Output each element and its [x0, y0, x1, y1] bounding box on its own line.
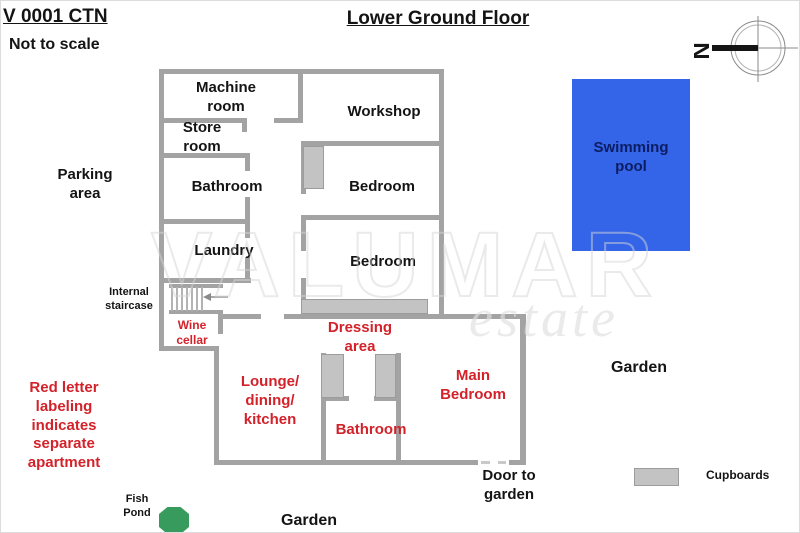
room-label-bedroom-lower: Bedroom	[350, 253, 416, 272]
room-label-workshop: Workshop	[347, 103, 420, 122]
room-label-bathroom-main: Bathroom	[192, 178, 263, 197]
label-door-to-garden: Door to garden	[482, 467, 535, 505]
label-garden-right: Garden	[611, 358, 667, 378]
legend-cupboards-label: Cupboards	[706, 468, 769, 483]
room-label-wine-cellar: Wine cellar	[176, 318, 207, 348]
label-garden-bottom: Garden	[281, 511, 337, 531]
apartment-note: Red letter labeling indicates separate a…	[28, 379, 101, 473]
room-label-store-room: Store room	[183, 119, 221, 157]
label-fish-pond: Fish Pond	[123, 493, 151, 521]
room-label-main-bedroom: Main Bedroom	[440, 367, 506, 405]
room-label-bedroom-upper: Bedroom	[349, 178, 415, 197]
label-internal-staircase: Internal staircase	[105, 286, 153, 314]
room-label-laundry: Laundry	[194, 242, 253, 261]
room-label-bathroom-apartment: Bathroom	[336, 421, 407, 440]
label-parking-area: Parking area	[57, 166, 112, 204]
room-label-machine-room: Machine room	[196, 79, 256, 117]
room-label-lounge-dining-kitchen: Lounge/ dining/ kitchen	[241, 373, 299, 429]
floor-plan-page: V 0001 CTN Not to scale Lower Ground Flo…	[0, 0, 800, 533]
room-label-dressing-area: Dressing area	[328, 319, 392, 357]
